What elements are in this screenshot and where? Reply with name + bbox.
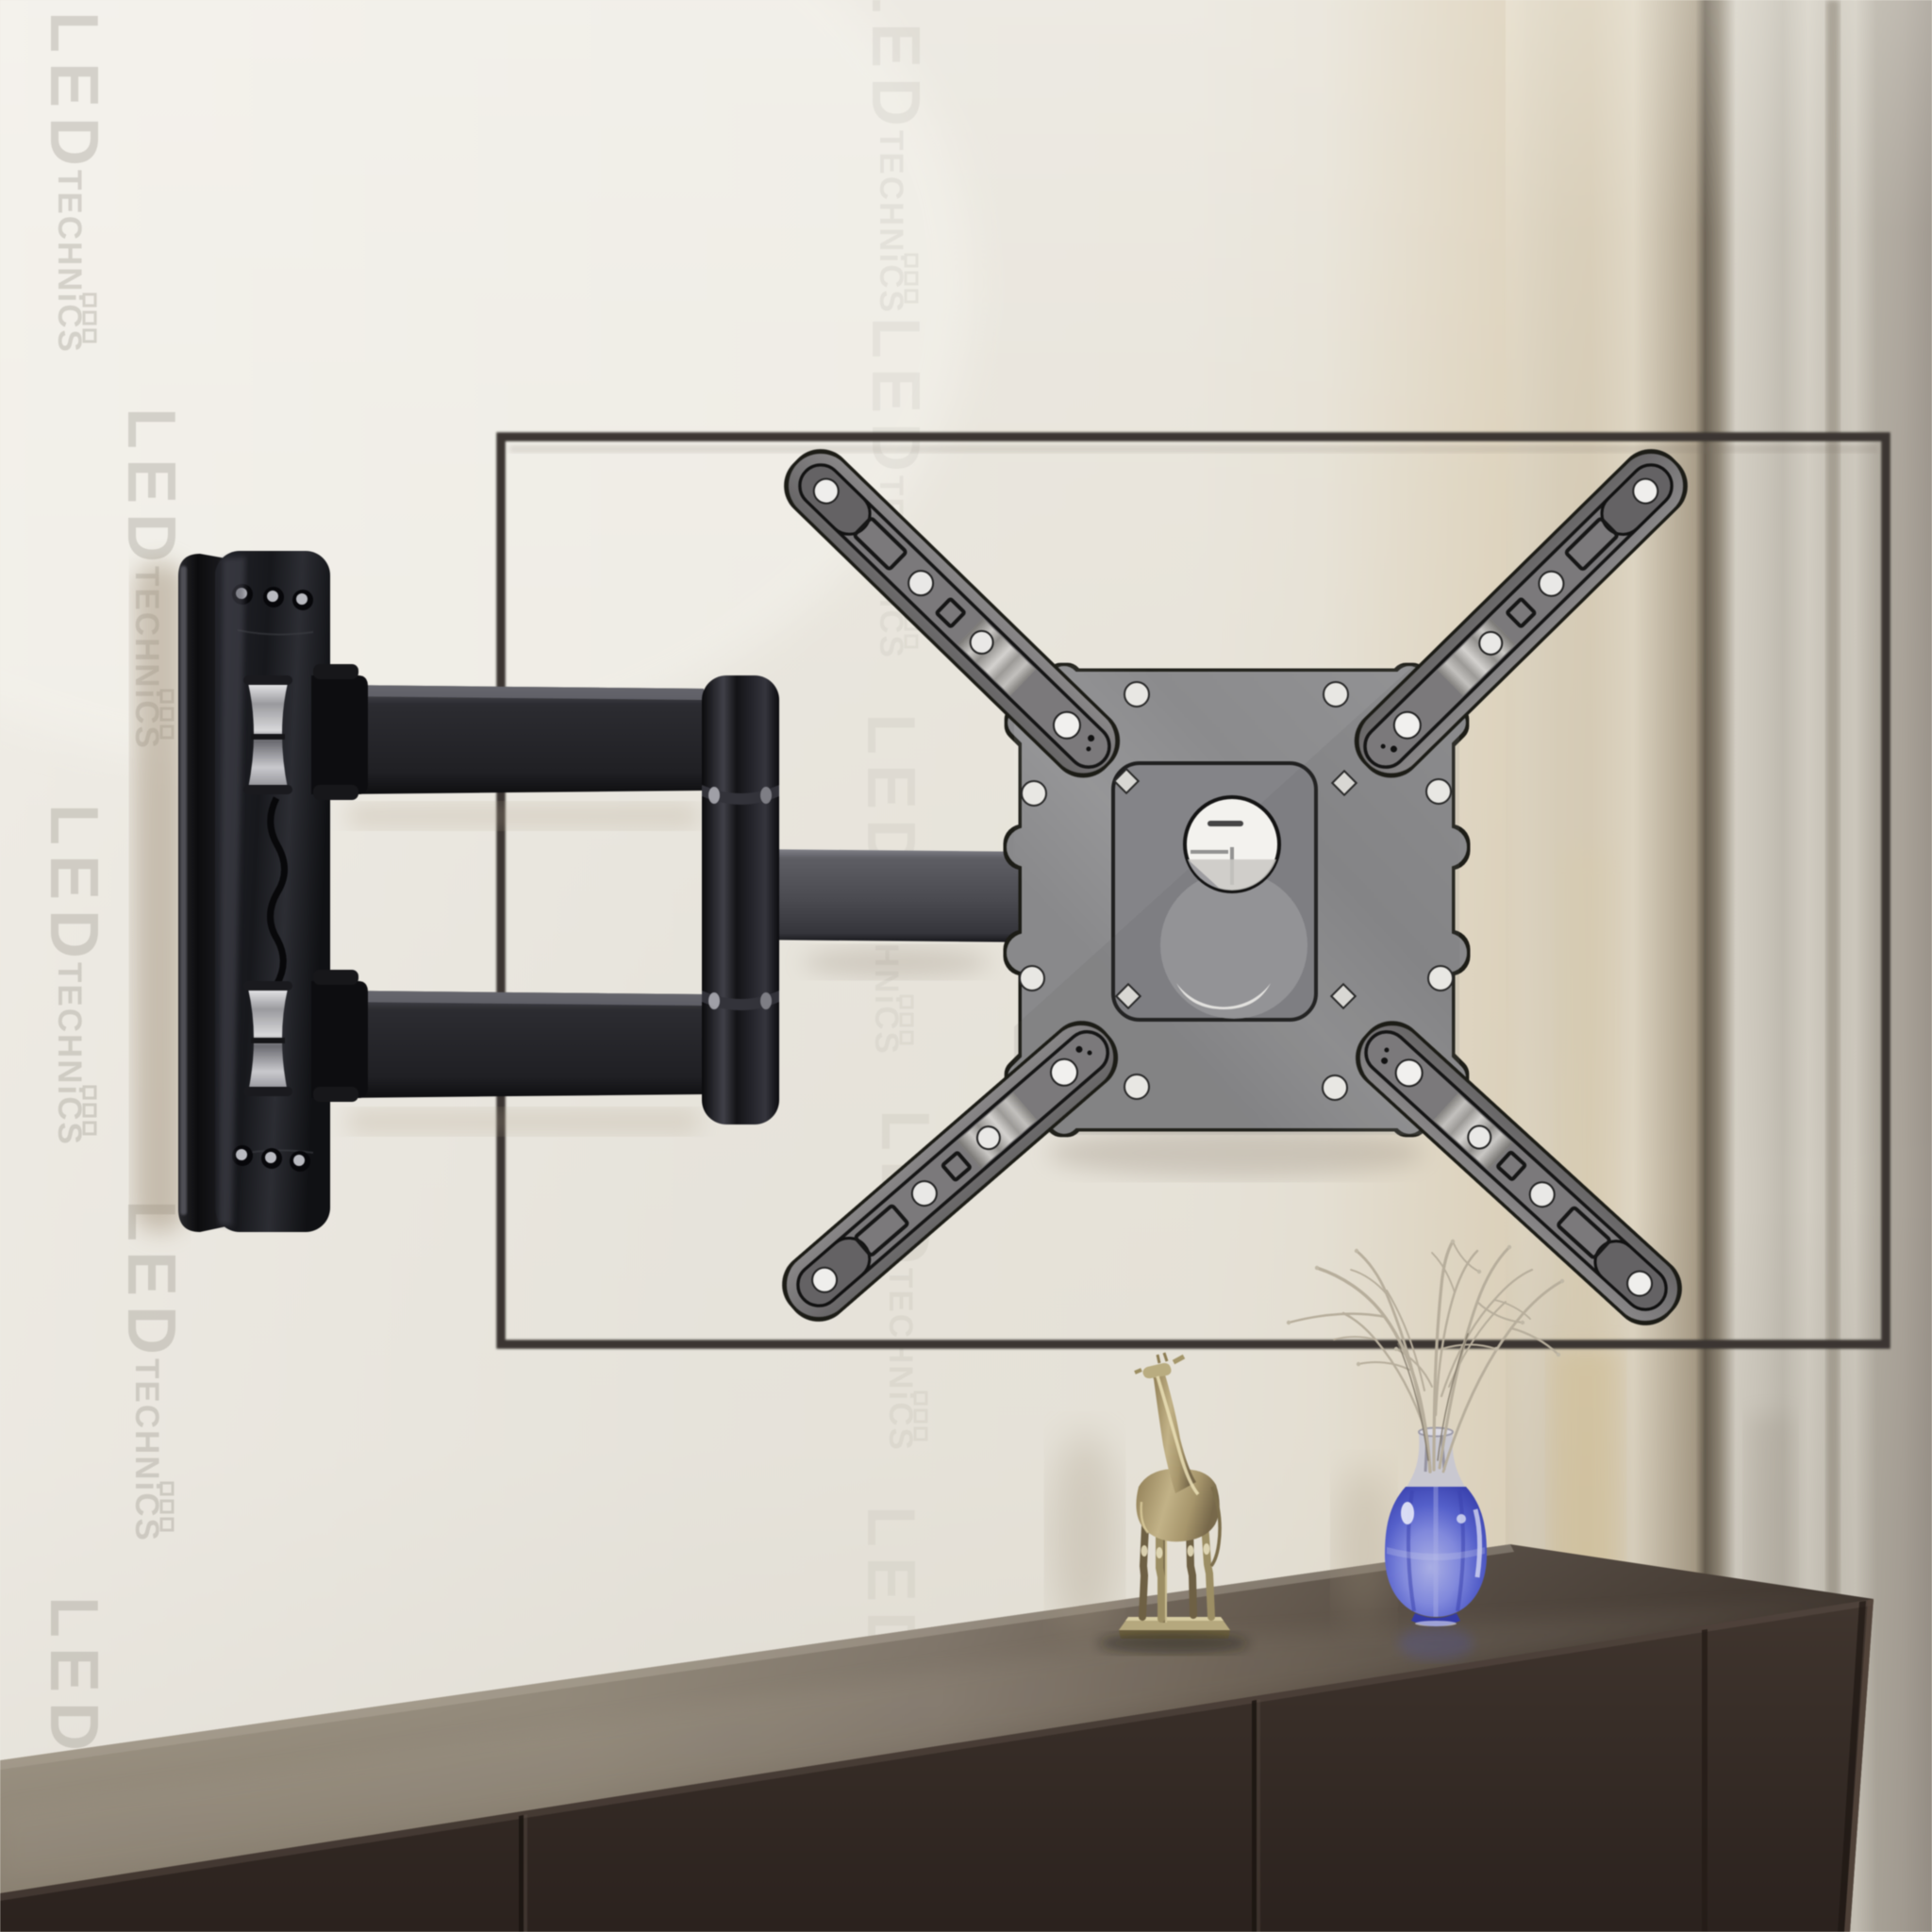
- svg-text:LED: LED: [858, 317, 933, 481]
- svg-text:TECHNiCS: TECHNiCS: [51, 170, 88, 354]
- svg-text:LED: LED: [36, 11, 111, 175]
- svg-text:LED: LED: [36, 1596, 111, 1760]
- svg-text:TECHNiCS: TECHNiCS: [51, 962, 88, 1146]
- svg-text:TECHNiCS: TECHNiCS: [128, 1358, 165, 1542]
- svg-text:LED: LED: [858, 0, 933, 136]
- svg-text:LED: LED: [36, 804, 111, 968]
- svg-text:LED: LED: [113, 408, 189, 572]
- svg-text:TECHNiCS: TECHNiCS: [873, 130, 909, 314]
- svg-text:TECHNiCS: TECHNiCS: [882, 1268, 919, 1452]
